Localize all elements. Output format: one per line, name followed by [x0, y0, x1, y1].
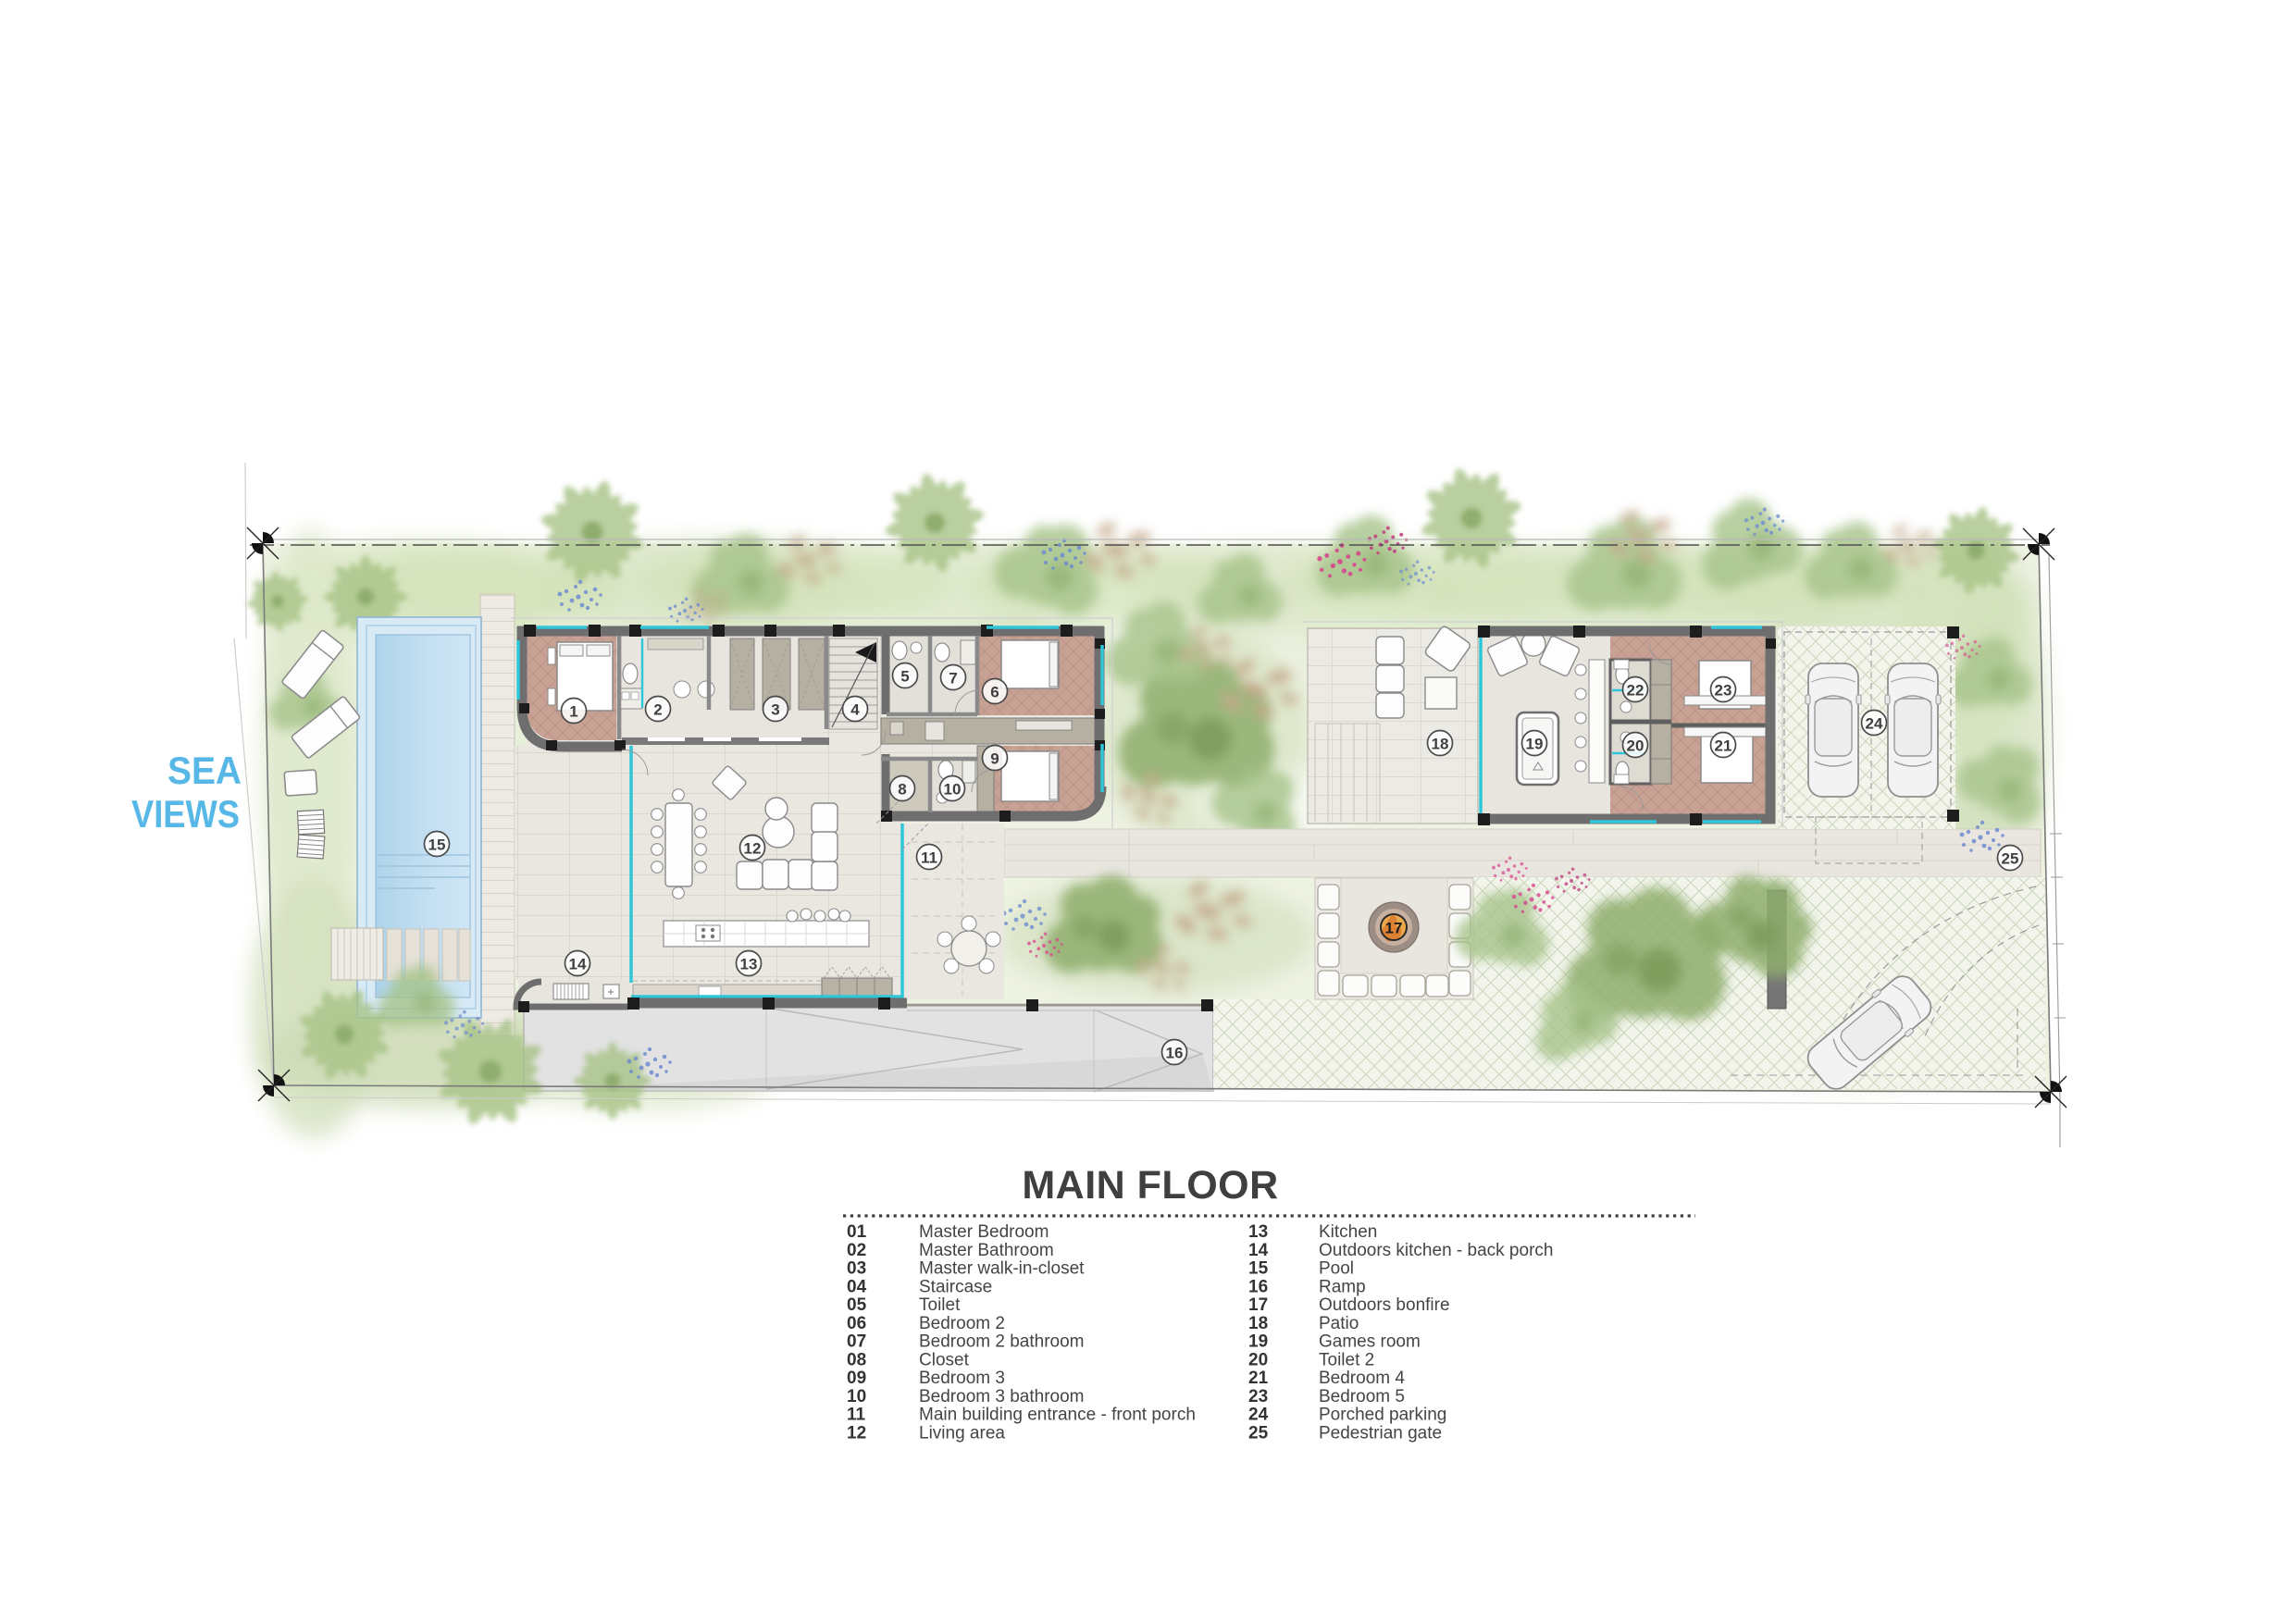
svg-text:Outdoors bonfire: Outdoors bonfire: [1319, 1295, 1450, 1315]
svg-text:Bedroom 2 bathroom: Bedroom 2 bathroom: [919, 1332, 1085, 1352]
svg-text:Bedroom 2: Bedroom 2: [919, 1314, 1005, 1333]
svg-text:10: 10: [847, 1387, 866, 1406]
svg-text:11: 11: [847, 1406, 866, 1425]
svg-text:15: 15: [1248, 1259, 1269, 1279]
svg-text:5: 5: [900, 668, 909, 686]
svg-text:24: 24: [1866, 715, 1883, 733]
svg-text:18: 18: [1432, 736, 1449, 753]
svg-text:Master Bedroom: Master Bedroom: [919, 1222, 1049, 1242]
svg-text:25: 25: [1248, 1423, 1269, 1443]
svg-text:20: 20: [1627, 737, 1644, 755]
svg-text:Kitchen: Kitchen: [1319, 1222, 1377, 1242]
svg-text:Ramp: Ramp: [1319, 1277, 1366, 1296]
svg-text:Main building entrance - front: Main building entrance - front porch: [919, 1406, 1196, 1425]
svg-text:08: 08: [847, 1350, 866, 1369]
svg-text:13: 13: [1248, 1222, 1268, 1242]
svg-text:3: 3: [771, 701, 779, 719]
svg-text:06: 06: [847, 1314, 866, 1333]
svg-text:19: 19: [1248, 1332, 1268, 1352]
svg-text:15: 15: [428, 836, 446, 854]
svg-text:SEA: SEA: [168, 749, 242, 792]
svg-text:22: 22: [1627, 682, 1644, 700]
svg-text:09: 09: [847, 1369, 866, 1388]
svg-text:07: 07: [847, 1332, 866, 1352]
svg-text:25: 25: [2002, 850, 2019, 868]
svg-text:05: 05: [847, 1295, 867, 1315]
svg-text:01: 01: [847, 1222, 867, 1242]
svg-text:8: 8: [898, 781, 906, 799]
svg-text:Master Bathroom: Master Bathroom: [919, 1241, 1054, 1260]
svg-text:16: 16: [1248, 1277, 1268, 1296]
svg-text:Pool: Pool: [1319, 1259, 1354, 1279]
svg-text:Toilet 2: Toilet 2: [1319, 1350, 1374, 1369]
svg-text:02: 02: [847, 1241, 866, 1260]
svg-text:12: 12: [847, 1423, 866, 1443]
svg-text:4: 4: [850, 701, 860, 719]
svg-text:24: 24: [1248, 1406, 1269, 1425]
svg-text:Closet: Closet: [919, 1350, 970, 1369]
svg-text:Porched parking: Porched parking: [1319, 1406, 1446, 1425]
svg-text:Toilet: Toilet: [919, 1295, 961, 1315]
svg-text:Outdoors kitchen - back porch: Outdoors kitchen - back porch: [1319, 1241, 1553, 1260]
svg-text:23: 23: [1715, 682, 1732, 700]
svg-text:Master walk-in-closet: Master walk-in-closet: [919, 1259, 1085, 1279]
svg-text:Bedroom 4: Bedroom 4: [1319, 1369, 1405, 1388]
svg-text:17: 17: [1385, 920, 1403, 937]
svg-text:03: 03: [847, 1259, 866, 1279]
svg-text:1: 1: [569, 703, 577, 721]
svg-text:9: 9: [990, 750, 999, 768]
svg-text:04: 04: [847, 1277, 867, 1296]
svg-text:Staircase: Staircase: [919, 1277, 992, 1296]
svg-text:16: 16: [1166, 1045, 1184, 1062]
svg-text:Games room: Games room: [1319, 1332, 1421, 1352]
svg-text:18: 18: [1248, 1314, 1268, 1333]
svg-text:10: 10: [944, 781, 962, 799]
svg-text:17: 17: [1248, 1295, 1268, 1315]
svg-text:MAIN FLOOR: MAIN FLOOR: [1022, 1163, 1278, 1208]
svg-text:Pedestrian gate: Pedestrian gate: [1319, 1423, 1442, 1443]
svg-text:19: 19: [1526, 736, 1544, 753]
svg-text:21: 21: [1715, 737, 1732, 755]
svg-text:2: 2: [653, 701, 662, 719]
svg-text:Patio: Patio: [1319, 1314, 1359, 1333]
svg-text:21: 21: [1248, 1369, 1269, 1388]
svg-text:20: 20: [1248, 1350, 1268, 1369]
svg-text:14: 14: [569, 956, 587, 973]
svg-text:Bedroom 3 bathroom: Bedroom 3 bathroom: [919, 1387, 1085, 1406]
svg-text:13: 13: [740, 956, 758, 973]
svg-text:14: 14: [1248, 1241, 1269, 1260]
svg-text:Bedroom 5: Bedroom 5: [1319, 1387, 1405, 1406]
svg-text:12: 12: [744, 840, 762, 858]
svg-text:6: 6: [990, 684, 999, 701]
svg-text:VIEWS: VIEWS: [131, 792, 240, 836]
svg-text:Living area: Living area: [919, 1423, 1005, 1443]
svg-text:23: 23: [1248, 1387, 1268, 1406]
svg-text:Bedroom 3: Bedroom 3: [919, 1369, 1005, 1388]
svg-text:11: 11: [921, 849, 937, 867]
svg-text:7: 7: [949, 670, 957, 688]
